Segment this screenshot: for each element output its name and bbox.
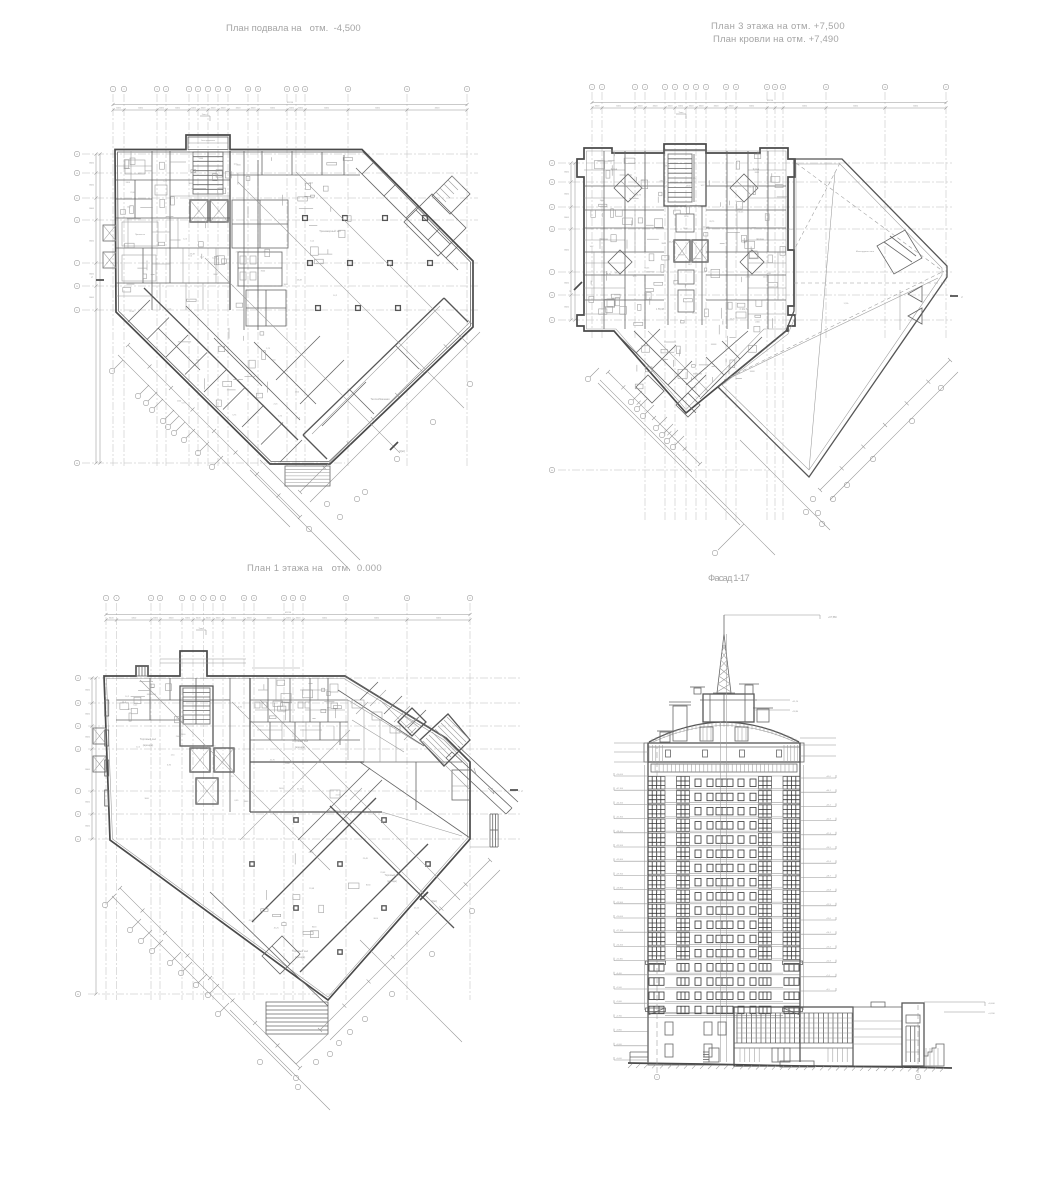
svg-text:4: 4 xyxy=(165,89,167,91)
svg-text:41,70: 41,70 xyxy=(335,794,341,796)
svg-text:3400: 3400 xyxy=(298,108,304,110)
svg-text:5,75: 5,75 xyxy=(232,415,237,417)
svg-text:14,2: 14,2 xyxy=(125,696,130,698)
svg-text:12: 12 xyxy=(766,87,769,89)
svg-text:17: 17 xyxy=(469,598,472,600)
svg-text:3400: 3400 xyxy=(638,106,644,108)
svg-text:14: 14 xyxy=(782,87,785,89)
svg-text:3400: 3400 xyxy=(802,106,808,108)
svg-text:Теплообменная: Теплообменная xyxy=(370,397,390,401)
svg-text:3400: 3400 xyxy=(270,108,276,110)
svg-text:14,2: 14,2 xyxy=(310,241,315,243)
svg-text:А: А xyxy=(551,469,553,472)
svg-text:1: 1 xyxy=(105,598,107,600)
svg-text:3400: 3400 xyxy=(153,618,159,620)
svg-text:3400: 3400 xyxy=(729,106,735,108)
svg-text:23,48: 23,48 xyxy=(363,858,369,860)
svg-text:3600: 3600 xyxy=(261,270,266,272)
svg-text:Электрощитовая: Электрощитовая xyxy=(201,140,215,142)
svg-text:+25,8: +25,8 xyxy=(826,890,831,892)
svg-text:34,25: 34,25 xyxy=(692,313,698,315)
svg-text:План 1 этажа на отм. 0.000: План 1 этажа на отм. 0.000 xyxy=(247,563,382,574)
svg-text:17: 17 xyxy=(945,87,948,89)
svg-text:14,2: 14,2 xyxy=(133,705,138,707)
svg-text:9: 9 xyxy=(227,89,229,91)
svg-text:3600: 3600 xyxy=(564,217,570,219)
svg-text:План подвала на отм. -4,500: План подвала на отм. -4,500 xyxy=(226,23,361,34)
svg-text:1: 1 xyxy=(591,87,593,89)
svg-text:+0,000: +0,000 xyxy=(616,1058,622,1060)
svg-text:+43,2: +43,2 xyxy=(826,804,831,806)
svg-text:3: 3 xyxy=(150,598,152,600)
svg-text:12,5: 12,5 xyxy=(188,255,193,257)
svg-text:49740: 49740 xyxy=(287,102,294,104)
svg-text:И: И xyxy=(76,154,78,156)
svg-text:9: 9 xyxy=(705,87,707,89)
svg-text:5,75: 5,75 xyxy=(278,416,283,418)
svg-text:+32,600: +32,600 xyxy=(616,859,623,861)
svg-text:11: 11 xyxy=(257,89,260,91)
svg-text:Д: Д xyxy=(76,220,78,222)
svg-text:1: 1 xyxy=(112,89,114,91)
svg-text:Узел: Узел xyxy=(679,112,684,114)
svg-text:3400: 3400 xyxy=(196,618,202,620)
svg-text:3400: 3400 xyxy=(296,618,302,620)
svg-text:Е: Е xyxy=(77,726,79,728)
svg-text:Б: Б xyxy=(76,310,78,312)
svg-text:А: А xyxy=(77,993,79,996)
svg-text:3600: 3600 xyxy=(85,769,91,771)
svg-text:8000: 8000 xyxy=(366,884,371,886)
svg-text:Г: Г xyxy=(551,272,553,274)
svg-text:34,25: 34,25 xyxy=(738,212,744,214)
svg-text:3600: 3600 xyxy=(283,284,288,286)
svg-text:6: 6 xyxy=(192,598,194,600)
svg-text:28,75: 28,75 xyxy=(606,273,612,275)
svg-text:3600: 3600 xyxy=(89,297,95,299)
svg-text:+8,400: +8,400 xyxy=(616,973,622,975)
svg-text:34,25: 34,25 xyxy=(669,241,675,243)
svg-text:3600: 3600 xyxy=(85,802,91,804)
svg-text:3: 3 xyxy=(156,89,158,91)
svg-text:3400: 3400 xyxy=(191,108,197,110)
svg-text:3400: 3400 xyxy=(714,106,720,108)
svg-text:7: 7 xyxy=(685,87,687,89)
svg-text:16: 16 xyxy=(406,598,409,600)
svg-text:3400: 3400 xyxy=(267,618,273,620)
svg-text:3600: 3600 xyxy=(89,208,95,210)
svg-text:3600: 3600 xyxy=(564,307,570,309)
svg-text:3400: 3400 xyxy=(435,108,441,110)
svg-text:+44,200: +44,200 xyxy=(616,802,623,804)
svg-text:41,70: 41,70 xyxy=(270,760,276,762)
svg-text:5: 5 xyxy=(188,89,190,91)
svg-text:+49,0: +49,0 xyxy=(826,776,831,778)
svg-text:+5,500: +5,500 xyxy=(616,987,622,989)
svg-text:Торговый зал: Торговый зал xyxy=(292,949,309,953)
svg-text:17: 17 xyxy=(466,89,469,91)
svg-text:Тренажерный зал: Тренажерный зал xyxy=(319,229,341,233)
svg-text:14: 14 xyxy=(304,89,307,91)
svg-text:2: 2 xyxy=(521,789,523,793)
svg-text:+26,800: +26,800 xyxy=(616,888,623,890)
svg-text:3400: 3400 xyxy=(169,618,175,620)
svg-text:+10,3: +10,3 xyxy=(826,961,831,963)
svg-text:3400: 3400 xyxy=(201,108,207,110)
svg-text:3400: 3400 xyxy=(853,106,859,108)
svg-text:3600: 3600 xyxy=(144,798,149,800)
svg-text:13: 13 xyxy=(295,89,298,91)
svg-text:2400: 2400 xyxy=(746,276,751,278)
svg-text:13: 13 xyxy=(774,87,777,89)
svg-text:12,5: 12,5 xyxy=(183,238,188,240)
svg-text:(аренда): (аренда) xyxy=(143,743,154,747)
svg-text:23,48: 23,48 xyxy=(309,888,315,890)
svg-text:5,75: 5,75 xyxy=(266,348,271,350)
svg-text:23,48: 23,48 xyxy=(297,280,303,282)
svg-text:2400: 2400 xyxy=(126,182,131,184)
svg-text:12,5: 12,5 xyxy=(163,180,168,182)
svg-text:10: 10 xyxy=(243,598,246,600)
svg-text:Ж: Ж xyxy=(76,173,78,175)
svg-text:3600: 3600 xyxy=(244,801,249,803)
svg-text:+34,5: +34,5 xyxy=(826,847,831,849)
svg-text:1100: 1100 xyxy=(295,391,300,393)
svg-text:8: 8 xyxy=(212,598,214,600)
svg-text:2: 2 xyxy=(123,89,125,91)
svg-text:План кровли на отм. +7,490: План кровли на отм. +7,490 xyxy=(713,34,839,45)
svg-text:3400: 3400 xyxy=(185,618,191,620)
svg-text:23,48: 23,48 xyxy=(130,192,136,194)
svg-text:3400: 3400 xyxy=(131,618,137,620)
svg-text:+20,000: +20,000 xyxy=(616,916,623,918)
svg-text:6: 6 xyxy=(197,89,199,91)
svg-text:3: 3 xyxy=(634,87,636,89)
svg-text:Д: Д xyxy=(77,749,79,751)
svg-text:+47,100: +47,100 xyxy=(616,788,623,790)
svg-text:14,2: 14,2 xyxy=(200,256,205,258)
svg-text:3600: 3600 xyxy=(85,737,91,739)
svg-text:3400: 3400 xyxy=(289,108,295,110)
svg-text:2: 2 xyxy=(961,295,963,299)
svg-text:12,5: 12,5 xyxy=(230,776,235,778)
svg-text:Б: Б xyxy=(551,320,553,322)
svg-text:12,5: 12,5 xyxy=(171,755,176,757)
svg-text:2400: 2400 xyxy=(684,216,689,218)
svg-text:+40,3: +40,3 xyxy=(826,819,831,821)
svg-text:+31,6: +31,6 xyxy=(826,861,831,863)
svg-text:3400: 3400 xyxy=(109,618,115,620)
svg-text:В: В xyxy=(77,814,79,816)
svg-text:2400: 2400 xyxy=(181,734,186,736)
svg-text:45,25: 45,25 xyxy=(274,927,280,929)
svg-text:1 55,08: 1 55,08 xyxy=(656,308,665,311)
svg-text:5: 5 xyxy=(181,598,183,600)
svg-text:14,2: 14,2 xyxy=(589,246,594,248)
svg-text:+35,500: +35,500 xyxy=(616,845,623,847)
svg-text:Кухня: Кухня xyxy=(611,168,618,171)
svg-text:+58,80: +58,80 xyxy=(792,711,799,713)
svg-text:2400: 2400 xyxy=(309,183,314,185)
svg-text:3400: 3400 xyxy=(689,106,695,108)
svg-text:6,85: 6,85 xyxy=(167,765,172,767)
svg-text:3600: 3600 xyxy=(564,194,570,196)
svg-text:2400: 2400 xyxy=(279,788,284,790)
svg-text:3600: 3600 xyxy=(564,283,570,285)
svg-text:3400: 3400 xyxy=(913,106,919,108)
svg-text:+13,2: +13,2 xyxy=(826,946,831,948)
svg-text:10: 10 xyxy=(247,89,250,91)
svg-text:3400: 3400 xyxy=(251,108,257,110)
svg-text:Жилая: Жилая xyxy=(756,238,764,241)
svg-text:3400: 3400 xyxy=(286,618,292,620)
svg-text:(аренда): (аренда) xyxy=(295,955,306,959)
svg-text:+17,100: +17,100 xyxy=(616,930,623,932)
svg-text:23,48: 23,48 xyxy=(190,253,196,255)
svg-text:+61,20: +61,20 xyxy=(792,701,799,703)
svg-text:(аренда): (аренда) xyxy=(295,745,306,749)
svg-text:+16,1: +16,1 xyxy=(826,932,831,934)
svg-text:1,5%: 1,5% xyxy=(844,303,849,305)
svg-text:5: 5 xyxy=(664,87,666,89)
svg-text:6,85: 6,85 xyxy=(234,800,239,802)
svg-text:3600: 3600 xyxy=(85,714,91,716)
svg-text:3400: 3400 xyxy=(375,108,381,110)
svg-text:41,70: 41,70 xyxy=(297,789,303,791)
svg-text:3400: 3400 xyxy=(678,106,684,108)
svg-text:+2,600: +2,600 xyxy=(616,1001,622,1003)
svg-text:3600: 3600 xyxy=(564,172,570,174)
svg-text:16: 16 xyxy=(406,89,409,91)
svg-text:3400: 3400 xyxy=(236,108,242,110)
svg-text:Торговый зал: Торговый зал xyxy=(385,874,400,877)
svg-text:7: 7 xyxy=(203,598,205,600)
svg-text:13: 13 xyxy=(292,598,295,600)
svg-text:3400: 3400 xyxy=(159,108,165,110)
svg-text:28,75: 28,75 xyxy=(665,165,671,167)
svg-text:21,6: 21,6 xyxy=(272,360,277,362)
svg-text:3400: 3400 xyxy=(595,106,601,108)
svg-text:4: 4 xyxy=(159,598,161,600)
svg-text:3(м): 3(м) xyxy=(431,899,437,903)
svg-text:4: 4 xyxy=(644,87,646,89)
svg-text:16: 16 xyxy=(884,87,887,89)
svg-text:Д: Д xyxy=(551,229,553,231)
svg-text:3400: 3400 xyxy=(216,618,222,620)
svg-text:28,75: 28,75 xyxy=(615,273,621,275)
svg-text:+19,0: +19,0 xyxy=(826,918,831,920)
svg-text:14,2: 14,2 xyxy=(700,185,705,187)
svg-text:+11,300: +11,300 xyxy=(616,959,623,961)
svg-text:1100: 1100 xyxy=(196,360,201,362)
svg-text:2400: 2400 xyxy=(199,158,204,160)
svg-text:А: А xyxy=(76,462,78,465)
svg-text:3400: 3400 xyxy=(436,618,442,620)
svg-text:14,2: 14,2 xyxy=(127,206,132,208)
svg-text:+50,000: +50,000 xyxy=(616,774,623,776)
svg-text:Ж: Ж xyxy=(77,703,79,705)
svg-text:3400: 3400 xyxy=(374,618,380,620)
svg-text:3400: 3400 xyxy=(211,108,217,110)
svg-text:3600: 3600 xyxy=(85,826,91,828)
svg-text:Жилая: Жилая xyxy=(600,238,608,241)
svg-text:3400: 3400 xyxy=(616,106,622,108)
svg-text:3600: 3600 xyxy=(89,185,95,187)
svg-text:3600: 3600 xyxy=(89,241,95,243)
svg-text:Мансардные окна: Мансардные окна xyxy=(856,251,875,253)
svg-text:+4,200: +4,200 xyxy=(988,1013,996,1015)
svg-text:41,70: 41,70 xyxy=(210,746,216,748)
svg-text:Фасад 1-17: Фасад 1-17 xyxy=(708,573,750,584)
svg-text:21,6: 21,6 xyxy=(273,404,278,406)
svg-text:2: 2 xyxy=(601,87,603,89)
svg-text:+0,700: +0,700 xyxy=(616,1015,622,1017)
svg-text:12,5: 12,5 xyxy=(128,709,133,711)
svg-text:+14,200: +14,200 xyxy=(616,944,623,946)
svg-text:Е: Е xyxy=(76,198,78,200)
svg-text:49740: 49740 xyxy=(767,100,774,102)
svg-text:3600: 3600 xyxy=(213,274,218,276)
svg-text:12,5: 12,5 xyxy=(136,747,141,749)
svg-text:3400: 3400 xyxy=(231,618,237,620)
svg-text:3600: 3600 xyxy=(564,250,570,252)
svg-text:6: 6 xyxy=(674,87,676,89)
svg-text:3400: 3400 xyxy=(322,618,328,620)
svg-text:2: 2 xyxy=(91,275,93,279)
svg-text:15: 15 xyxy=(345,598,348,600)
svg-text:3600: 3600 xyxy=(686,185,691,187)
svg-text:3400: 3400 xyxy=(749,106,755,108)
svg-text:3400: 3400 xyxy=(206,618,212,620)
svg-text:Е: Е xyxy=(551,207,553,209)
svg-text:14,2: 14,2 xyxy=(688,264,693,266)
svg-text:Г: Г xyxy=(77,791,79,793)
svg-text:Ж: Ж xyxy=(551,182,553,184)
svg-text:11: 11 xyxy=(253,598,256,600)
svg-text:3400: 3400 xyxy=(324,108,330,110)
svg-text:8: 8 xyxy=(695,87,697,89)
svg-text:14: 14 xyxy=(302,598,305,600)
svg-text:28,75: 28,75 xyxy=(709,221,715,223)
svg-text:12,5: 12,5 xyxy=(692,178,697,180)
svg-text:3(м): 3(м) xyxy=(399,449,405,453)
svg-text:3 102,65: 3 102,65 xyxy=(739,308,749,311)
svg-text:2400: 2400 xyxy=(755,322,760,324)
svg-text:34,25: 34,25 xyxy=(644,268,650,270)
svg-text:+37,4: +37,4 xyxy=(826,833,831,835)
svg-text:9: 9 xyxy=(222,598,224,600)
svg-text:14,2: 14,2 xyxy=(333,295,338,297)
svg-text:45,25: 45,25 xyxy=(414,908,420,910)
svg-text:8: 8 xyxy=(217,89,219,91)
svg-text:В: В xyxy=(76,286,78,288)
svg-text:3400: 3400 xyxy=(175,108,181,110)
svg-text:3400: 3400 xyxy=(653,106,659,108)
svg-text:3600: 3600 xyxy=(85,690,91,692)
svg-text:3400: 3400 xyxy=(116,108,122,110)
svg-text:3400: 3400 xyxy=(247,618,253,620)
svg-text:23,48: 23,48 xyxy=(236,252,242,254)
svg-text:+7,4: +7,4 xyxy=(826,975,830,977)
svg-text:И: И xyxy=(77,678,79,680)
svg-text:10: 10 xyxy=(725,87,728,89)
svg-text:1,5%: 1,5% xyxy=(788,229,793,231)
svg-text:Кухня: Кухня xyxy=(753,168,760,171)
svg-text:3400: 3400 xyxy=(699,106,705,108)
svg-text:Б: Б xyxy=(77,839,79,841)
svg-text:План 3 этажа на отм. +7,500: План 3 этажа на отм. +7,500 xyxy=(711,21,845,32)
svg-text:Узел: Узел xyxy=(199,628,204,630)
svg-text:+23,900: +23,900 xyxy=(616,902,623,904)
svg-text:12,5: 12,5 xyxy=(632,276,637,278)
svg-text:В: В xyxy=(551,295,553,297)
svg-text:+0,900: +0,900 xyxy=(616,1044,622,1046)
svg-text:+38,400: +38,400 xyxy=(616,831,623,833)
svg-text:+41,300: +41,300 xyxy=(616,817,623,819)
svg-text:Приточная: Приточная xyxy=(135,234,145,236)
svg-text:2: 2 xyxy=(116,598,118,600)
svg-text:8000: 8000 xyxy=(374,918,379,920)
svg-text:23,48: 23,48 xyxy=(129,311,135,313)
svg-text:34,25: 34,25 xyxy=(730,318,736,320)
svg-text:3600: 3600 xyxy=(661,243,666,245)
svg-text:8000: 8000 xyxy=(312,927,317,929)
svg-text:+0,800: +0,800 xyxy=(616,1030,622,1032)
svg-text:28,75: 28,75 xyxy=(636,194,642,196)
svg-text:3400: 3400 xyxy=(221,108,227,110)
svg-text:+46,1: +46,1 xyxy=(826,790,831,792)
svg-text:3600: 3600 xyxy=(89,163,95,165)
svg-text:2400: 2400 xyxy=(285,763,290,765)
svg-text:21,6: 21,6 xyxy=(296,417,301,419)
svg-text:3400: 3400 xyxy=(668,106,674,108)
svg-text:12: 12 xyxy=(283,598,286,600)
svg-text:49740: 49740 xyxy=(285,612,292,614)
svg-text:Узел 1: Узел 1 xyxy=(202,114,209,116)
svg-text:(аренда): (аренда) xyxy=(387,880,397,883)
svg-text:+8,400: +8,400 xyxy=(988,1003,996,1005)
svg-text:15: 15 xyxy=(825,87,828,89)
svg-text:Г: Г xyxy=(76,263,78,265)
svg-text:+28,7: +28,7 xyxy=(826,875,831,877)
svg-text:Торговый зал: Торговый зал xyxy=(140,737,157,741)
svg-text:+67,580: +67,580 xyxy=(828,616,837,619)
svg-text:7: 7 xyxy=(207,89,209,91)
svg-text:+22,9: +22,9 xyxy=(826,904,831,906)
svg-text:+29,700: +29,700 xyxy=(616,873,623,875)
svg-text:+4,5: +4,5 xyxy=(826,989,830,991)
svg-text:15: 15 xyxy=(347,89,350,91)
svg-text:И: И xyxy=(551,163,553,165)
svg-text:12: 12 xyxy=(286,89,289,91)
svg-text:1: 1 xyxy=(656,1077,658,1079)
svg-text:17: 17 xyxy=(917,1077,920,1079)
svg-text:11: 11 xyxy=(735,87,738,89)
svg-text:3400: 3400 xyxy=(138,108,144,110)
